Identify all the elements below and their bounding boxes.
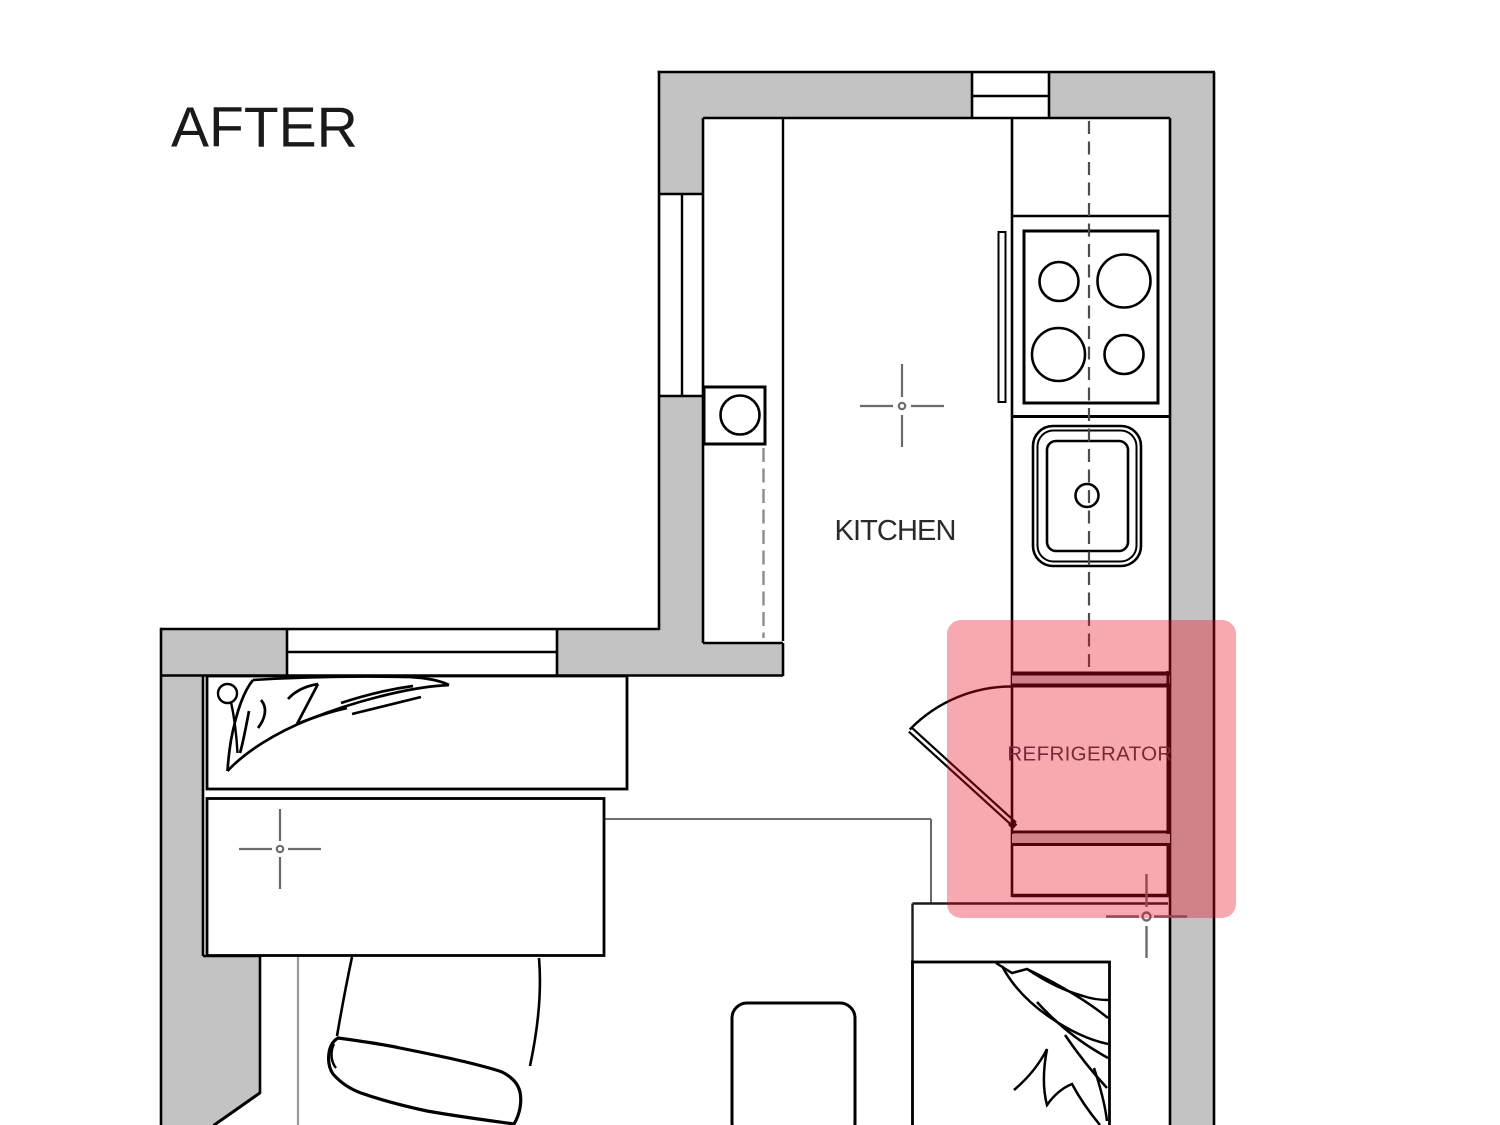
- svg-text:AFTER: AFTER: [171, 96, 358, 160]
- svg-text:KITCHEN: KITCHEN: [835, 515, 956, 547]
